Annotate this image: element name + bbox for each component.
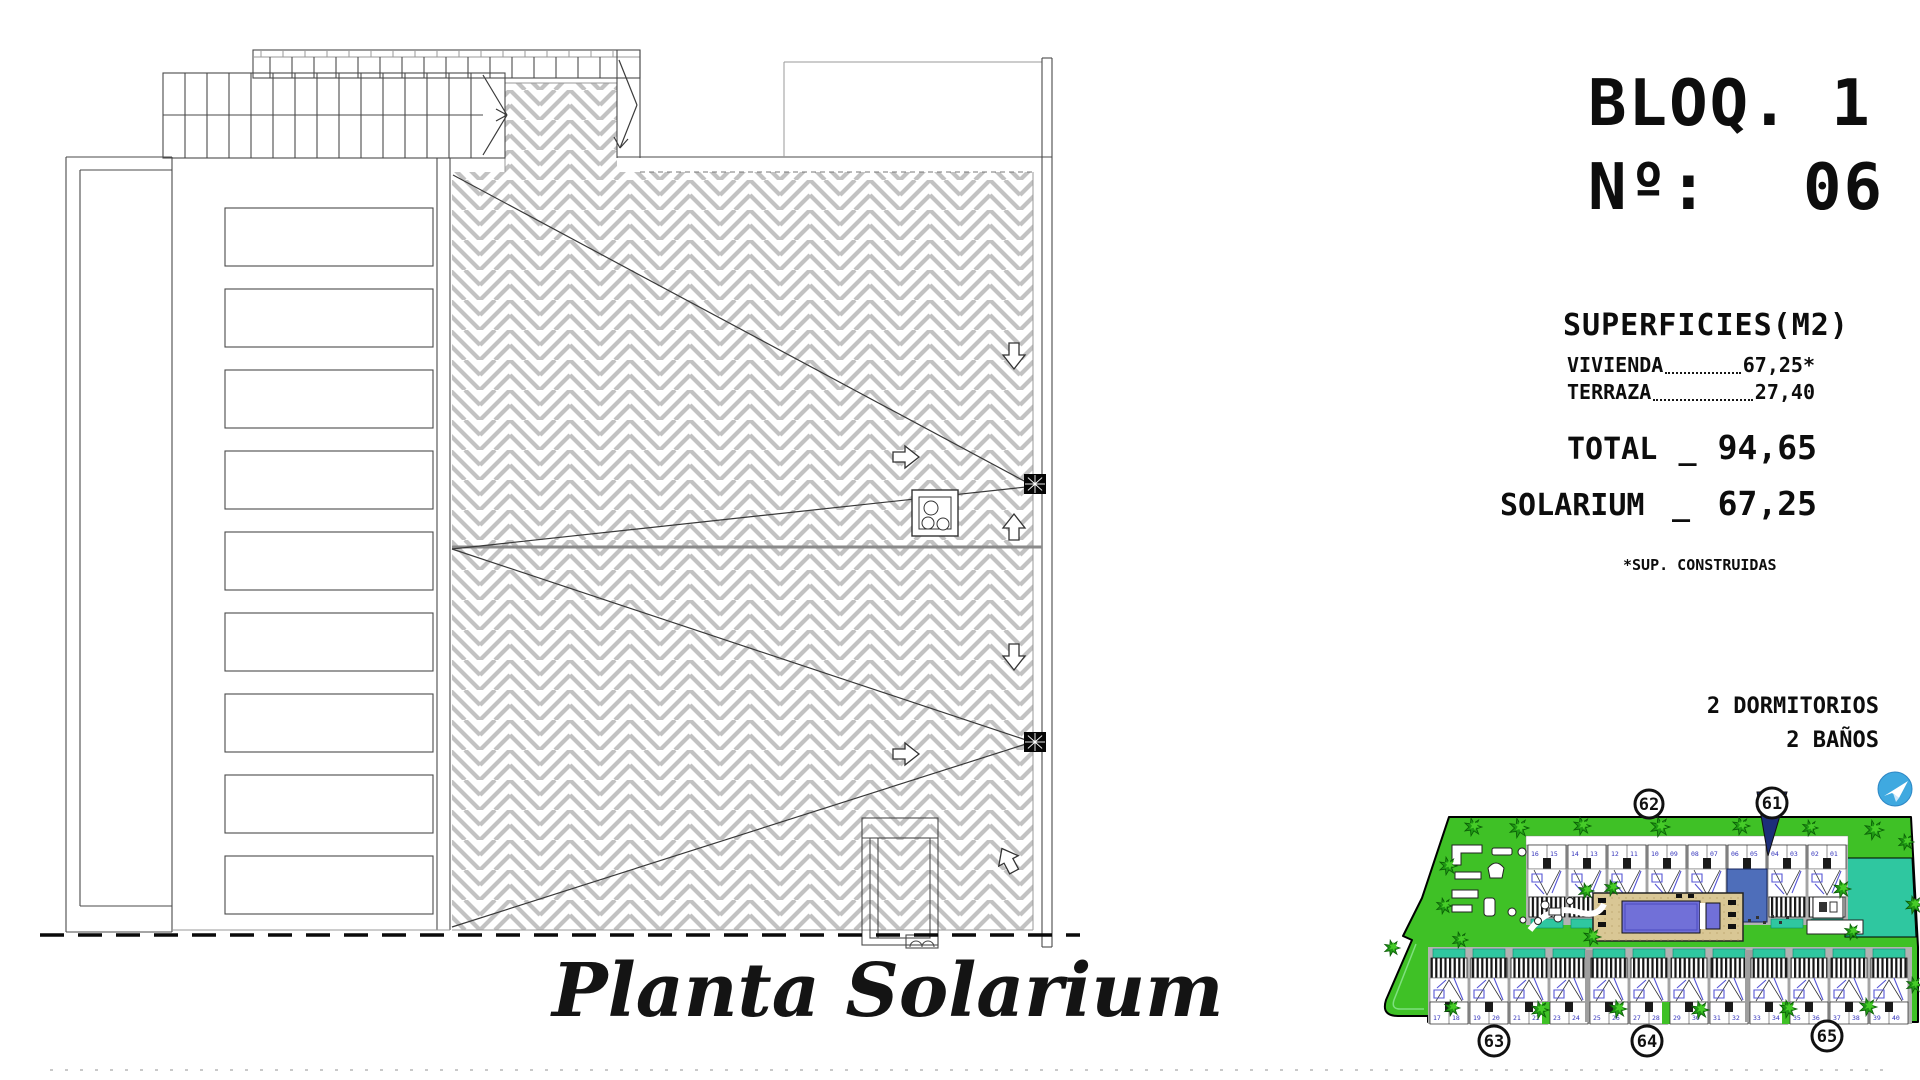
svg-text:13: 13 (1590, 850, 1598, 858)
site-unit: 1718 (1430, 949, 1468, 1024)
svg-text:65: 65 (1817, 1027, 1837, 1047)
block-marker-62: 62 (1635, 790, 1663, 818)
unit-number-row: Nº: 06 (1588, 146, 1884, 230)
svg-text:28: 28 (1652, 1014, 1660, 1022)
solarium-row: SOLARIUM _ 67,25 (1500, 484, 1817, 523)
svg-text:35: 35 (1793, 1014, 1801, 1022)
svg-text:64: 64 (1637, 1032, 1657, 1052)
solarium-separator: _ (1672, 488, 1690, 523)
total-row: TOTAL _ 94,65 (1567, 428, 1817, 467)
plan-sheet: 1615141312111009080706050403020117181920… (0, 0, 1920, 1080)
svg-text:14: 14 (1571, 850, 1579, 858)
svg-text:29: 29 (1673, 1014, 1681, 1022)
roof-drain-icon (1024, 732, 1046, 752)
svg-text:04: 04 (1771, 850, 1779, 858)
svg-text:61: 61 (1762, 794, 1782, 814)
site-unit: 3132 (1710, 949, 1748, 1024)
svg-text:20: 20 (1492, 1014, 1500, 1022)
block-marker-63: 63 (1479, 1026, 1509, 1056)
site-unit: 3940 (1870, 949, 1908, 1024)
svg-text:03: 03 (1790, 850, 1798, 858)
site-unit: 1920 (1470, 949, 1508, 1024)
surface-label: VIVIENDA (1567, 352, 1663, 379)
svg-text:12: 12 (1611, 850, 1619, 858)
svg-text:40: 40 (1892, 1014, 1900, 1022)
svg-text:31: 31 (1713, 1014, 1721, 1022)
roof-drain-icon (1024, 474, 1046, 494)
svg-text:02: 02 (1811, 850, 1819, 858)
svg-text:18: 18 (1452, 1014, 1460, 1022)
svg-text:39: 39 (1873, 1014, 1881, 1022)
total-separator: _ (1678, 432, 1696, 467)
surface-value: 27,40 (1755, 379, 1815, 406)
svg-text:15: 15 (1550, 850, 1558, 858)
block-marker-64: 64 (1632, 1026, 1662, 1056)
solarium-value: 67,25 (1718, 484, 1817, 523)
bathrooms-text: 2 BAÑOS (1597, 724, 1879, 758)
svg-text:24: 24 (1572, 1014, 1580, 1022)
surfaces-footnote: *SUP. CONSTRUIDAS (1623, 556, 1777, 574)
svg-text:17: 17 (1433, 1014, 1441, 1022)
solarium-label: SOLARIUM (1500, 488, 1645, 523)
svg-text:63: 63 (1484, 1032, 1504, 1052)
svg-text:27: 27 (1633, 1014, 1641, 1022)
surface-value: 67,25* (1743, 352, 1815, 379)
skylight-icon (912, 490, 958, 536)
block-title: BLOQ. 1 (1588, 62, 1884, 146)
dot-leader (1653, 399, 1752, 401)
svg-text:37: 37 (1833, 1014, 1841, 1022)
svg-text:07: 07 (1710, 850, 1718, 858)
svg-text:25: 25 (1593, 1014, 1601, 1022)
unit-number-label: Nº: (1588, 146, 1710, 230)
unit-number-value: 06 (1803, 146, 1884, 230)
svg-text:06: 06 (1731, 850, 1739, 858)
svg-text:11: 11 (1630, 850, 1638, 858)
site-plan: 1615141312111009080706050403020117181920… (1385, 772, 1920, 1056)
surface-row-terraza: TERRAZA 27,40 (1567, 379, 1815, 406)
svg-text:05: 05 (1750, 850, 1758, 858)
bedrooms-text: 2 DORMITORIOS (1597, 690, 1879, 724)
surfaces-rows: VIVIENDA 67,25* TERRAZA 27,40 (1567, 352, 1815, 406)
svg-text:33: 33 (1753, 1014, 1761, 1022)
pool-area (1593, 893, 1743, 941)
svg-text:21: 21 (1513, 1014, 1521, 1022)
block-marker-65: 65 (1812, 1021, 1842, 1051)
tree-icon (1385, 940, 1400, 956)
surfaces-heading: SUPERFICIES(M2) (1563, 308, 1849, 343)
svg-text:23: 23 (1553, 1014, 1561, 1022)
svg-text:34: 34 (1772, 1014, 1780, 1022)
total-value: 94,65 (1718, 428, 1817, 467)
svg-text:36: 36 (1812, 1014, 1820, 1022)
svg-text:16: 16 (1531, 850, 1539, 858)
svg-text:10: 10 (1651, 850, 1659, 858)
total-label: TOTAL (1567, 432, 1657, 467)
svg-text:38: 38 (1852, 1014, 1860, 1022)
svg-text:32: 32 (1732, 1014, 1740, 1022)
plan-caption: Planta Solarium (552, 948, 1097, 1034)
unit-features: 2 DORMITORIOS 2 BAÑOS (1597, 690, 1879, 758)
svg-text:08: 08 (1691, 850, 1699, 858)
surface-row-vivienda: VIVIENDA 67,25* (1567, 352, 1815, 379)
surface-label: TERRAZA (1567, 379, 1651, 406)
logo-paper-plane-icon (1878, 772, 1912, 806)
dot-leader (1665, 372, 1740, 374)
title-block: BLOQ. 1 Nº: 06 (1588, 62, 1884, 230)
svg-text:19: 19 (1473, 1014, 1481, 1022)
svg-text:01: 01 (1830, 850, 1838, 858)
svg-text:09: 09 (1670, 850, 1678, 858)
svg-text:62: 62 (1639, 795, 1659, 815)
site-unit: 3738 (1830, 949, 1868, 1024)
